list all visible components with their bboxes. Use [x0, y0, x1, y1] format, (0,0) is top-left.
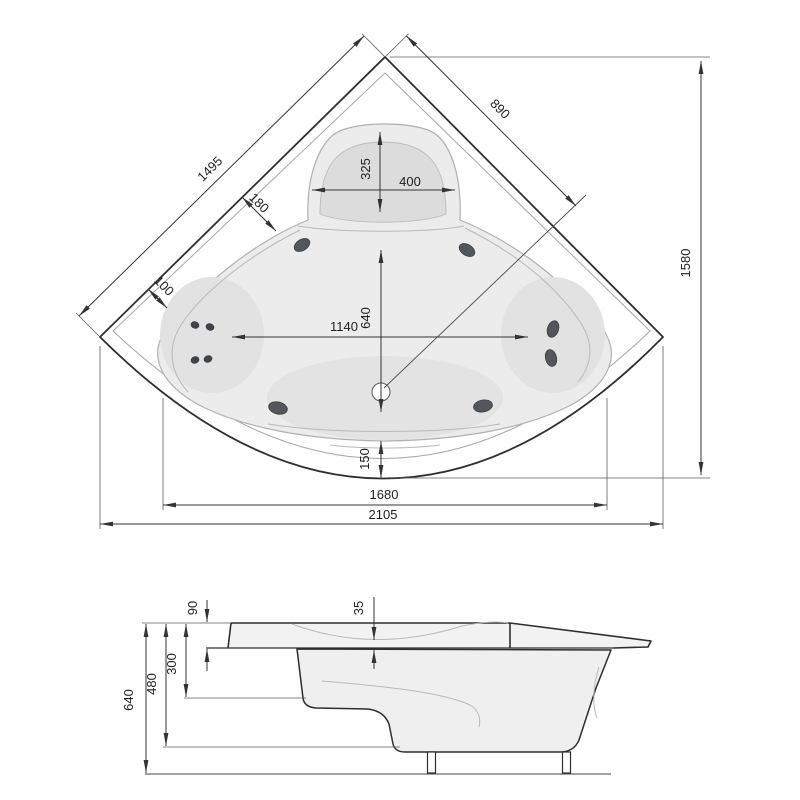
dim-label-35: 35 [351, 601, 366, 615]
dim-label-325: 325 [358, 158, 373, 180]
dim-label-90: 90 [185, 601, 200, 615]
tub-legs [428, 752, 571, 773]
dim-label-1495: 1495 [194, 153, 225, 184]
dim-label-300: 300 [164, 653, 179, 675]
bathtub-drawing: 1495 890 180 100 1580 325 400 1140 640 1… [0, 0, 800, 800]
dim-label-1580: 1580 [678, 249, 693, 278]
dim-label-890: 890 [487, 96, 513, 122]
dim-label-640-side: 640 [121, 689, 136, 711]
dim-label-480: 480 [144, 673, 159, 695]
deck-band [228, 623, 651, 648]
dim-label-1680: 1680 [370, 487, 399, 502]
side-view: 640 480 300 90 35 [121, 597, 651, 774]
dim-label-2105: 2105 [369, 507, 398, 522]
tub-body-profile [297, 649, 611, 752]
top-view: 1495 890 180 100 1580 325 400 1140 640 1… [76, 34, 710, 529]
dim-label-1140: 1140 [330, 319, 358, 334]
dim-label-400: 400 [399, 174, 421, 189]
dim-label-150: 150 [357, 448, 372, 470]
leg [563, 752, 571, 773]
dim-label-640: 640 [358, 307, 373, 329]
technical-drawing-page: 1495 890 180 100 1580 325 400 1140 640 1… [0, 0, 800, 800]
leg [428, 752, 436, 773]
dim-label-100: 100 [151, 273, 177, 299]
dim-label-180: 180 [246, 190, 272, 216]
